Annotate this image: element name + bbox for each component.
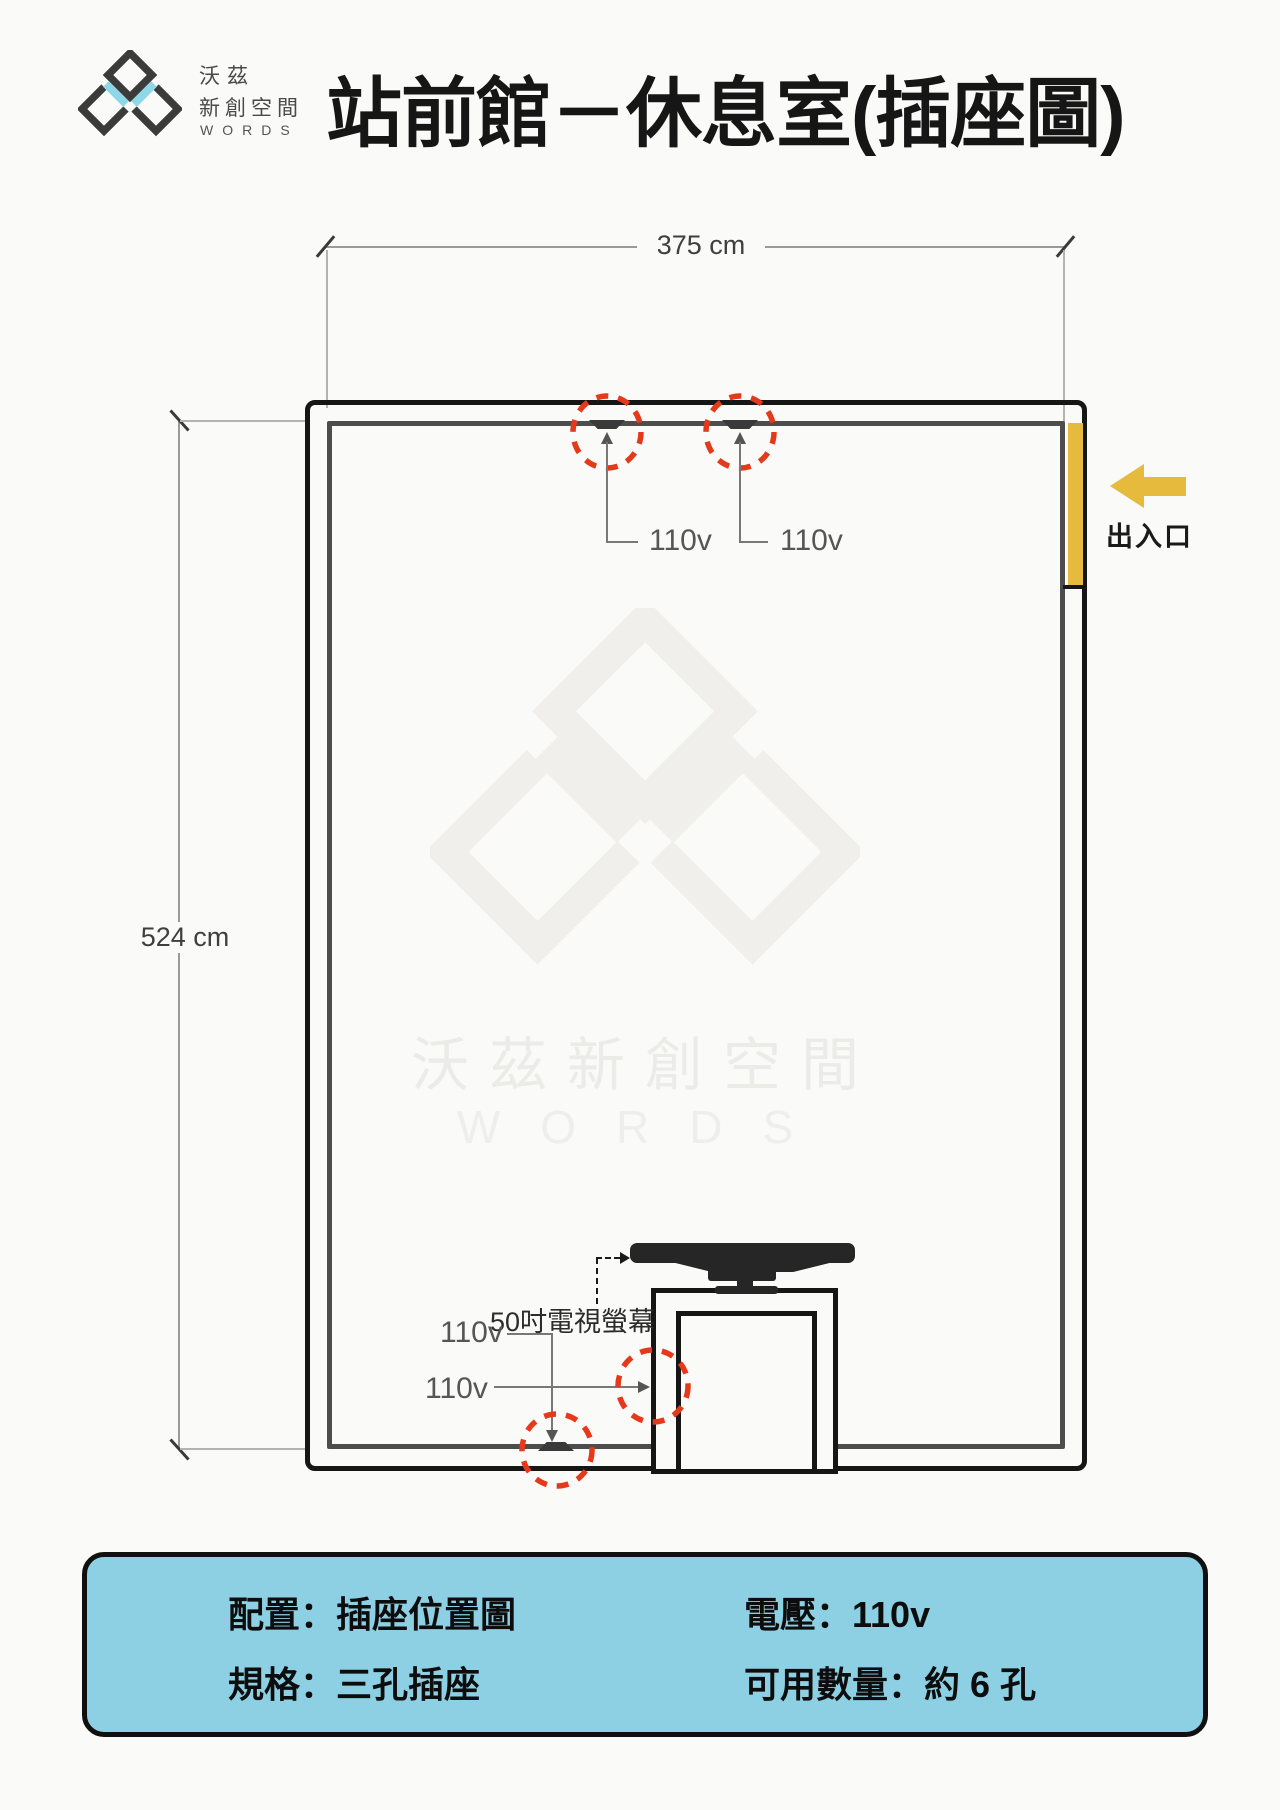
outlet-top-1-leader-h xyxy=(606,541,638,543)
dim-width-ext-right xyxy=(1063,250,1065,422)
outlet-top-2-leader-v xyxy=(739,442,741,543)
tv-screen xyxy=(630,1243,855,1263)
outlet-floor-leader-h xyxy=(507,1333,552,1335)
tv-stand-base xyxy=(715,1286,778,1294)
dim-width-ext-left xyxy=(326,250,328,408)
outlet-alcove-label: 110v xyxy=(425,1372,488,1406)
info-config: 配置：插座位置圖 xyxy=(228,1586,516,1638)
info-voltage: 電壓：110v xyxy=(744,1586,930,1638)
dim-width-label: 375 cm xyxy=(637,230,765,261)
outlet-alcove-highlight-circle xyxy=(614,1346,692,1426)
logo-name-line1: 沃茲 xyxy=(199,60,255,90)
logo-name-line2: 新創空間 xyxy=(199,92,303,122)
dim-height-ext-top xyxy=(180,420,305,422)
outlet-side-label: 110v xyxy=(440,1316,503,1350)
info-box xyxy=(82,1552,1208,1737)
entrance-door-bar xyxy=(1068,423,1083,585)
tv-leader-arrowhead xyxy=(620,1252,630,1264)
page: 沃茲 新創空間 WORDS 站前館－休息室(插座圖) 沃茲新創空間 WORDS … xyxy=(0,0,1280,1810)
entrance-label: 出入口 xyxy=(1106,515,1193,554)
logo-name-line3: WORDS xyxy=(200,122,299,138)
info-spec: 規格：三孔插座 xyxy=(228,1656,480,1708)
outlet-floor-highlight-circle xyxy=(518,1410,596,1490)
outlet-top-2-leader-h xyxy=(739,541,768,543)
info-quantity: 可用數量：約 6 孔 xyxy=(744,1656,1036,1708)
outlet-top-2-label: 110v xyxy=(780,524,843,558)
outlet-top-1-label: 110v xyxy=(649,524,712,558)
entrance-door-cap xyxy=(1063,585,1087,589)
dim-height-ext-bottom xyxy=(180,1448,305,1450)
outlet-top-1-leader-v xyxy=(606,442,608,543)
entrance-arrow-shaft xyxy=(1144,477,1186,496)
entrance-arrow-icon xyxy=(1110,464,1144,508)
alcove-inner-wall xyxy=(676,1311,817,1474)
dim-height-label: 524 cm xyxy=(121,922,249,953)
page-title: 站前館－休息室(插座圖) xyxy=(326,52,1125,162)
words-logo-icon xyxy=(78,50,182,140)
tv-leader-dashed-h xyxy=(596,1257,620,1259)
tv-leader-dashed-v xyxy=(596,1258,598,1304)
